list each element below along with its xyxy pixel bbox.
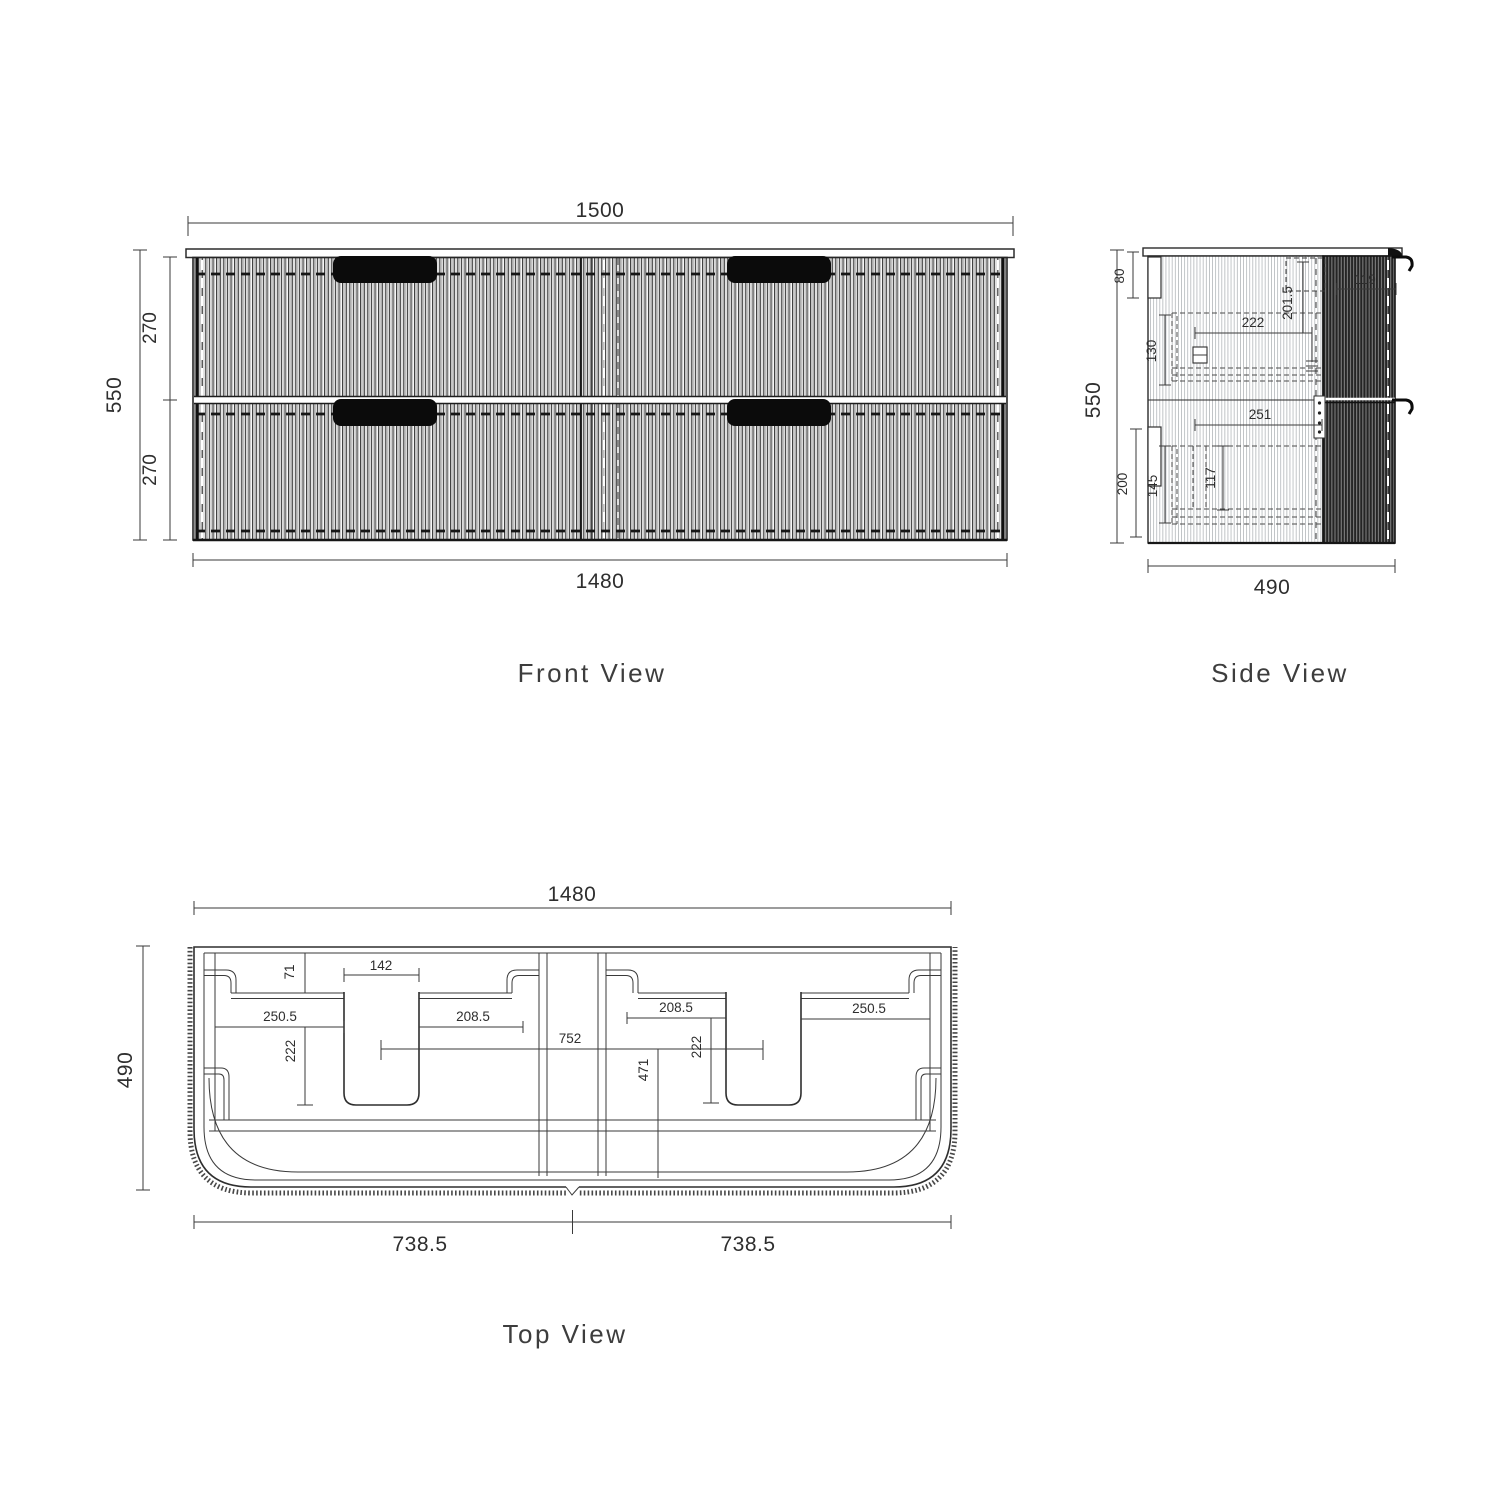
side-dim-drawer1-back-label: 130 — [1144, 340, 1159, 363]
front-dim-drawer-heights: 270 270 — [140, 257, 177, 540]
front-dim-cabinet-width-label: 1480 — [576, 570, 625, 593]
side-dim-front-edge-label: 119 — [1354, 272, 1376, 287]
top-carcass-face — [209, 1078, 936, 1172]
side-dim-benchtop-drop-label: 201.5 — [1280, 286, 1295, 320]
top-dim-basin-centres: 752 — [381, 1031, 763, 1060]
top-dim-right-outer-span: 250.5 — [801, 1001, 930, 1025]
front-view-title: Front View — [518, 658, 667, 688]
top-view: 1480 — [114, 883, 955, 1349]
top-dim-cabinet-width-label: 1480 — [548, 883, 597, 906]
side-dim-drawer2-back-label: 145 — [1145, 475, 1160, 498]
top-dim-back-offset-label: 71 — [282, 964, 297, 979]
top-dim-left-inner-span-label: 208.5 — [456, 1009, 490, 1024]
front-handle-top-left — [333, 256, 437, 283]
front-handle-top-right — [727, 256, 831, 283]
vanity-drawing-svg: 1500 550 — [0, 0, 1500, 1485]
top-left-half-rails — [204, 970, 539, 1120]
side-dim-drawer2-depth-label: 251 — [1249, 407, 1272, 422]
side-dim-bottom-rail: 200 — [1115, 429, 1142, 537]
front-handle-bottom-left — [333, 399, 437, 426]
side-dim-drawer1-depth-label: 222 — [1242, 315, 1265, 330]
technical-drawing-page: 1500 550 — [0, 0, 1500, 1485]
top-dim-back-offset: 71 — [282, 953, 311, 993]
side-dim-top-rail: 80 — [1112, 252, 1139, 298]
front-view: 1500 550 — [103, 199, 1014, 688]
side-dim-overall-height: 550 — [1082, 250, 1124, 543]
top-dim-waste-width-label: 142 — [370, 958, 393, 973]
top-dim-right-cutout-depth-label: 222 — [689, 1036, 704, 1059]
side-countertop — [1143, 248, 1402, 256]
front-dim-overall-width-label: 1500 — [576, 199, 625, 222]
top-dim-basin-centres-label: 752 — [559, 1031, 582, 1046]
top-dim-waste-width: 142 — [344, 958, 419, 982]
side-dim-top-rail-label: 80 — [1112, 268, 1127, 283]
top-right-half-rails — [606, 970, 941, 1120]
top-view-title: Top View — [502, 1319, 627, 1349]
top-dim-left-outer-span-label: 250.5 — [263, 1009, 297, 1024]
top-dim-inner-depth-label: 471 — [636, 1059, 651, 1082]
top-dim-cabinet-width: 1480 — [194, 883, 951, 915]
front-dim-top-drawer-label: 270 — [140, 312, 161, 344]
top-dim-inner-depth: 471 — [636, 1049, 665, 1178]
front-handle-bottom-right — [727, 399, 831, 426]
side-dim-overall-depth: 490 — [1148, 559, 1395, 599]
side-hinge-plate — [1314, 396, 1325, 438]
side-view: 550 80 130 222 201.5 — [1082, 248, 1412, 688]
side-wall-rail-top — [1148, 257, 1161, 298]
front-dim-bottom-drawer-label: 270 — [140, 454, 161, 486]
side-dim-overall-depth-label: 490 — [1254, 576, 1291, 599]
top-dim-cabinet-depth: 490 — [114, 946, 150, 1190]
top-dim-half-widths: 738.5 738.5 — [194, 1210, 951, 1256]
side-dim-drawer2-inner-label: 117 — [1203, 467, 1218, 489]
side-dim-overall-height-label: 550 — [1082, 382, 1105, 419]
top-dim-right-outer-span-label: 250.5 — [852, 1001, 886, 1016]
top-dim-left-inner-span: 208.5 — [419, 1009, 523, 1033]
top-dim-half-right-label: 738.5 — [720, 1233, 775, 1256]
side-dim-bottom-rail-label: 200 — [1115, 473, 1130, 496]
top-outer-outline — [194, 947, 951, 1187]
front-dim-overall-height: 550 — [103, 250, 147, 540]
top-dim-left-outer-span: 250.5 — [215, 1009, 344, 1033]
top-inner-shell — [204, 953, 941, 1180]
top-dim-left-cutout-depth-label: 222 — [283, 1040, 298, 1063]
front-dim-overall-width: 1500 — [188, 199, 1013, 236]
top-dim-half-left-label: 738.5 — [392, 1233, 447, 1256]
front-dim-cabinet-width: 1480 — [193, 553, 1007, 593]
side-view-title: Side View — [1211, 658, 1349, 688]
front-dim-overall-height-label: 550 — [103, 377, 126, 414]
front-countertop — [186, 249, 1014, 258]
top-dim-left-cutout-depth: 222 — [283, 1027, 313, 1105]
top-dim-right-inner-span-label: 208.5 — [659, 1000, 693, 1015]
top-dim-cabinet-depth-label: 490 — [114, 1052, 137, 1089]
top-dim-right-cutout-depth: 222 — [689, 1018, 719, 1103]
front-drawer-divider-gap — [194, 397, 1006, 404]
